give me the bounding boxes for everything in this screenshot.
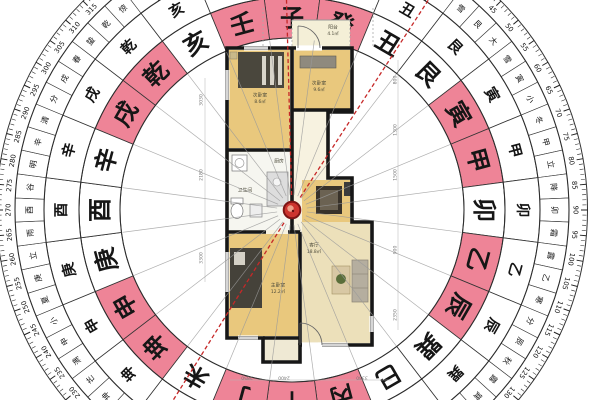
ring-text: 明: [28, 160, 38, 169]
ring-text: 90: [572, 206, 580, 215]
ring-text: 立: [545, 160, 556, 170]
degree-tick: [0, 235, 4, 236]
ring-text: 265: [5, 228, 14, 242]
dim-bottom: 3330: [356, 375, 368, 381]
luopan-overlay-view: 子子寒子大癸癸寒癸小丑丑至丑冬艮艮雪艮大寅寅雪寅小甲甲冬甲立卯卯降卯霜乙乙露乙寒…: [0, 0, 600, 400]
degree-tick: [580, 235, 586, 236]
ring-text: 85: [570, 181, 579, 190]
label-bedroom-top-left: 次卧室: [253, 92, 268, 99]
ring-text: 午: [280, 388, 304, 400]
bed-top-left: [238, 52, 284, 88]
plant: [336, 274, 346, 284]
door-gap: [302, 342, 322, 347]
label-balcony: 阳台: [328, 24, 338, 31]
ring-text: 酉: [85, 198, 114, 222]
ring-text: 降: [549, 183, 560, 192]
dim-left: 2180: [199, 169, 205, 181]
degree-tick: [580, 184, 586, 185]
dim-right: 2350: [393, 309, 399, 321]
bed-pillow: [262, 56, 266, 85]
label-area-bedroom-master: 12.2㎡: [271, 288, 286, 295]
dresser: [300, 56, 336, 68]
luopan-compass: 子子寒子大癸癸寒癸小丑丑至丑冬艮艮雪艮大寅寅雪寅小甲甲冬甲立卯卯降卯霜乙乙露乙寒…: [0, 0, 600, 400]
center-marker[interactable]: [284, 202, 301, 219]
center-dot-core: [292, 210, 294, 212]
ring-text: 卯: [470, 198, 499, 222]
ring-text: 卯: [514, 203, 531, 218]
ring-text: 谷: [26, 183, 36, 192]
label-bedroom-top-right: 次卧室: [312, 80, 327, 87]
label-area-bedroom-top-left: 8.6㎡: [254, 98, 266, 105]
bed-pillow: [278, 56, 282, 85]
kitchen-sink: [273, 178, 281, 186]
ring-text: 酉: [53, 203, 70, 218]
ring-text: 80: [567, 156, 576, 166]
degree-tick: [0, 184, 4, 185]
label-kitchen: 厨房: [274, 158, 284, 165]
dim-right: 1500: [393, 169, 399, 181]
ring-text: 270: [5, 204, 13, 217]
dim-right: 800: [393, 76, 399, 85]
dining-table-top: [320, 190, 338, 210]
toilet: [231, 204, 243, 219]
room-balcony[interactable]: [292, 20, 350, 48]
label-area-balcony: 4.1㎡: [327, 30, 339, 37]
ring-text: 立: [27, 251, 38, 261]
ring-text: 露: [545, 251, 555, 260]
ring-text: 雨: [26, 229, 36, 238]
ring-text: 95: [570, 230, 579, 239]
door-gap: [296, 45, 322, 50]
room-entry[interactable]: [265, 340, 298, 360]
label-area-bedroom-top-right: 9.6㎡: [313, 86, 325, 93]
dim-bottom: 2850: [241, 375, 253, 381]
dim-right: 1300: [393, 124, 399, 136]
dim-left: 3300: [199, 252, 205, 264]
ring-text: 霜: [549, 229, 559, 238]
washer: [232, 155, 247, 171]
label-living-room: 客厅: [309, 242, 319, 249]
dim-bottom: 2400: [278, 375, 290, 381]
ring-text: 275: [5, 178, 14, 192]
label-bedroom-master: 主卧室: [271, 282, 286, 289]
dim-left: 3030: [199, 94, 205, 106]
ring-text: 卯: [550, 206, 559, 214]
ring-text: 酉: [25, 206, 34, 214]
nightstand: [230, 52, 237, 59]
bed-pillow: [234, 252, 245, 265]
